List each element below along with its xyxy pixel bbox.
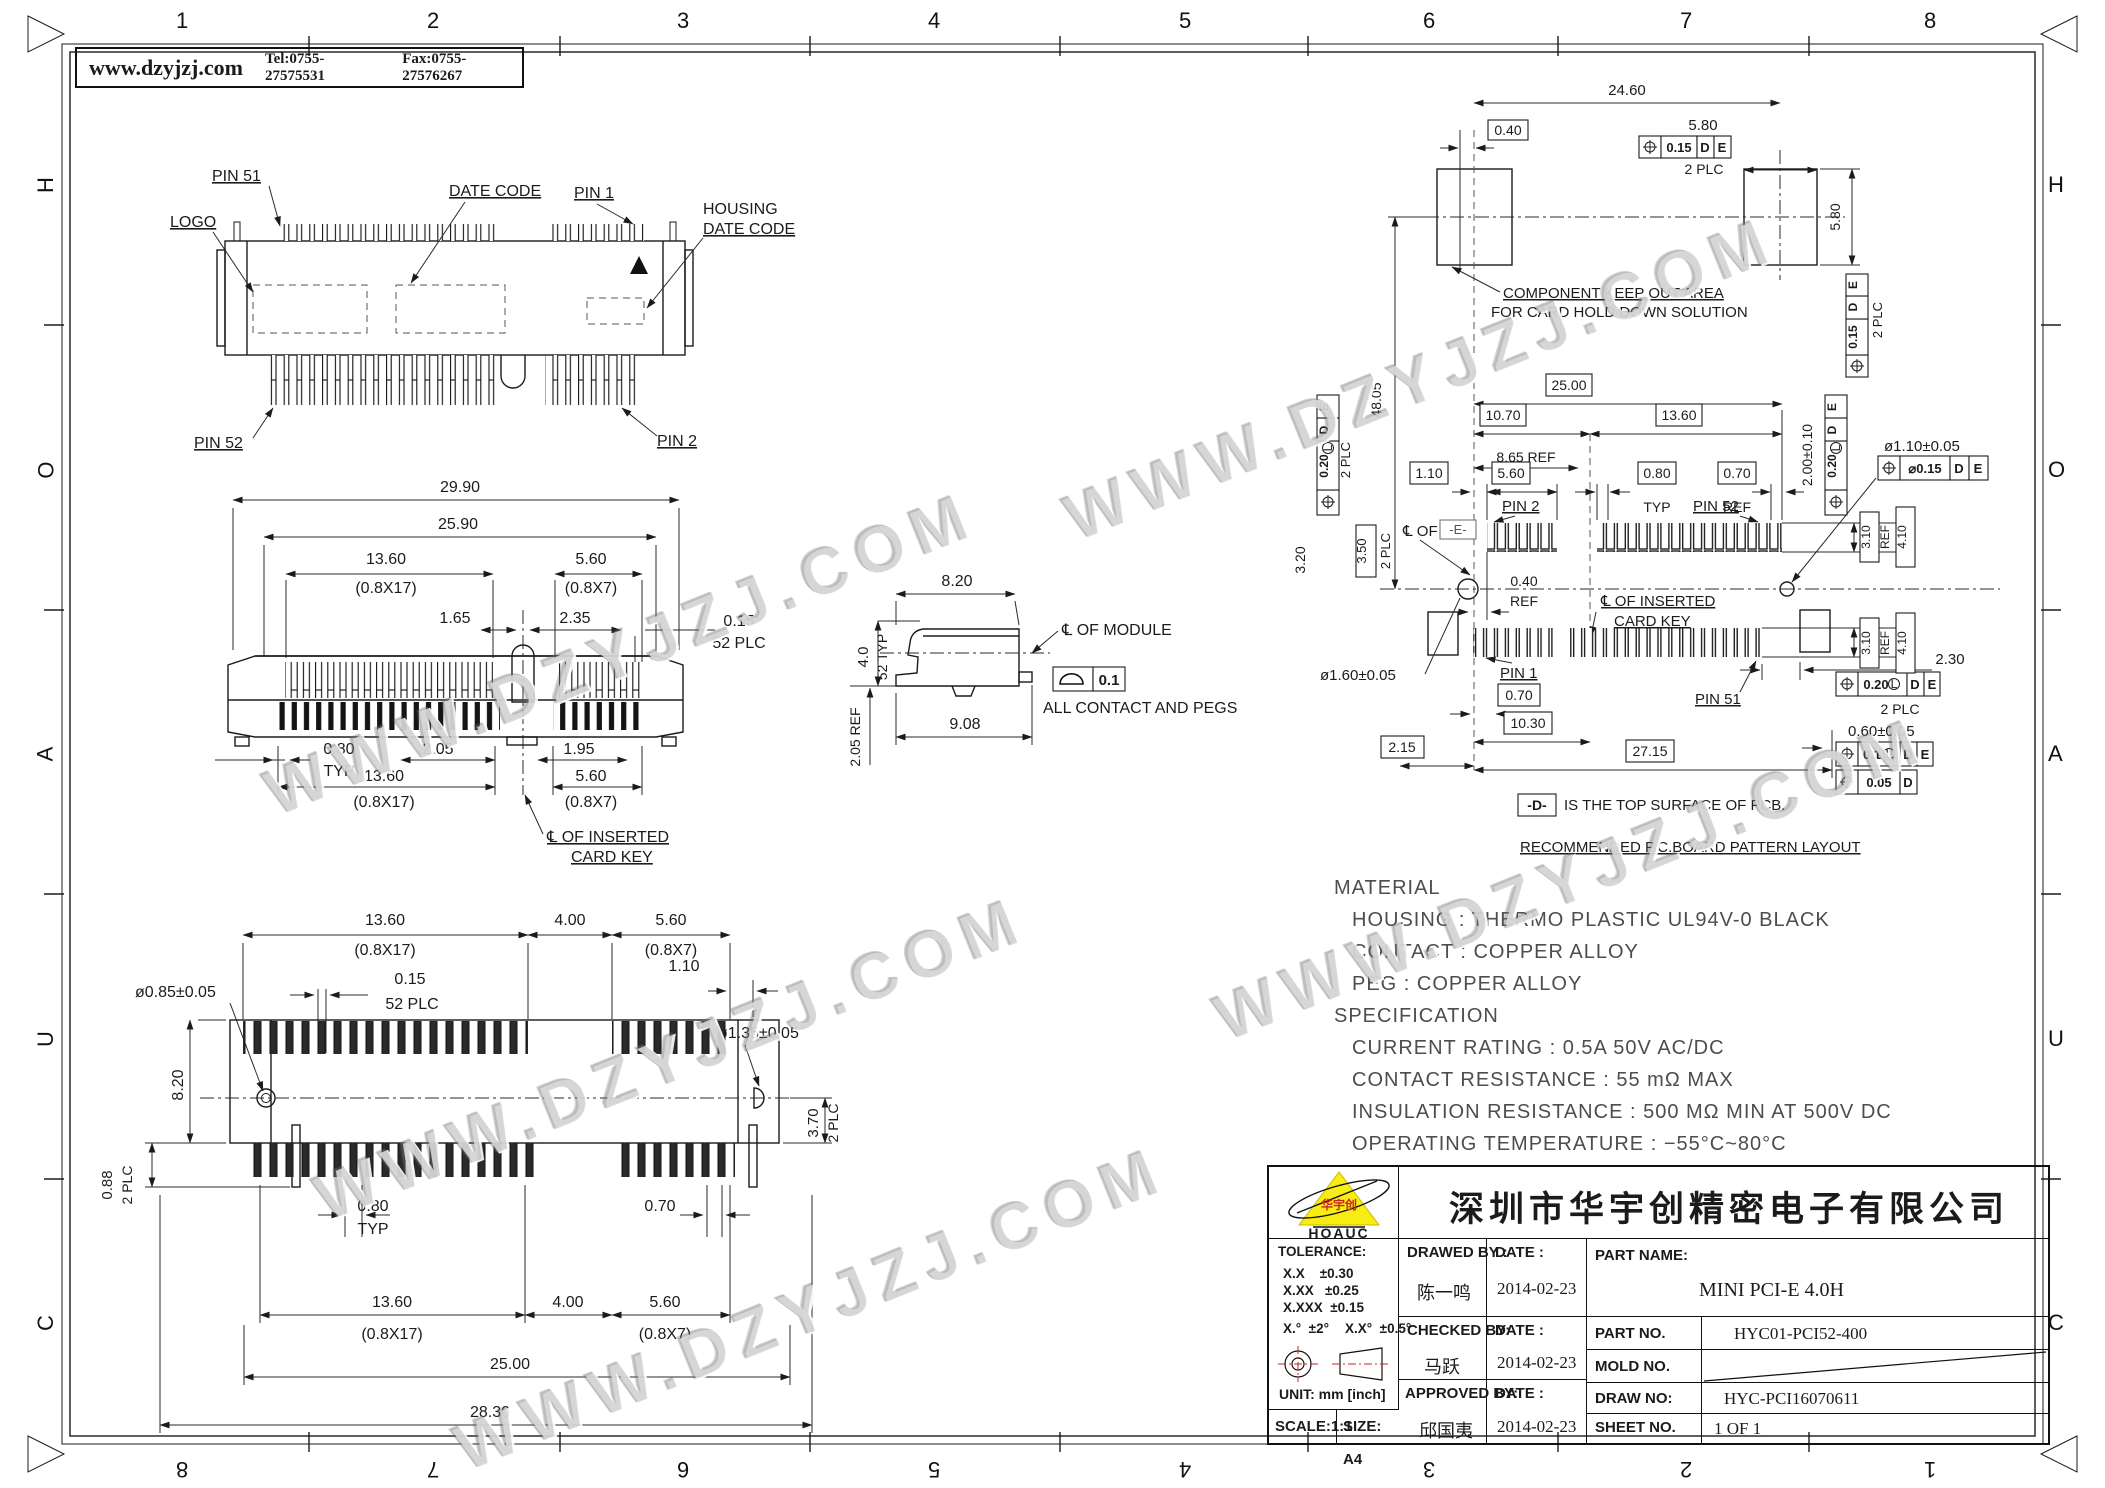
fax: Fax:0755-27576267 [402,51,522,85]
tolerance-1: X.X ±0.30 [1283,1265,1353,1282]
pcb-310-410-bottom: 3.10 REF 4.10 [1859,613,1915,673]
spec-contact-resistance: CONTACT RESISTANCE : 55 mΩ MAX [1328,1064,1888,1096]
gdt-01-e: E [1921,747,1930,762]
bv-4-00-b: 4.00 [552,1294,583,1311]
gdt-frame-2-30: 0.20 L D E 2 PLC [1836,672,1940,717]
zone-col-b8: 8 [176,1456,188,1482]
pcb-2-00: 2.00±0.10 [1799,424,1815,486]
dim-typ: TYP [323,763,354,780]
pcb-310b-ref: REF [1878,631,1892,655]
bv-2-plc: 2 PLC [825,1104,841,1143]
gdt-rv-e: E [1846,281,1860,289]
tolerance-2: X.XX ±0.25 [1283,1282,1359,1299]
bv-0-88-plc: 2 PLC [119,1166,135,1205]
dim-5-60: 5.60 [575,551,606,568]
side-view: 8.20 4.0 52 TYP 2.05 REF 9.08 ℄ OF MODUL… [780,565,1300,865]
gdt-200-l: L [1829,444,1843,451]
bv-0-70: 0.70 [644,1198,675,1215]
pcb-0-40-ref: 0.40 [1510,573,1537,589]
bv-13-60-pitch: (0.8X17) [354,942,415,959]
dim-1-95: 1.95 [563,741,594,758]
zone-row-u: U [33,1031,59,1047]
bv-typ: TYP [357,1221,388,1238]
pcb-3-20: 3.20 [1292,546,1308,573]
material-peg: PEG : COPPER ALLOY [1328,968,1888,1000]
company-logo: 华宇创 HOAUC [1277,1169,1402,1239]
part-no: HYC01-PCI52-400 [1734,1324,1867,1344]
gdt-230-l: L [1891,677,1898,691]
gdt-lv-plc: 2 PLC [1338,442,1353,478]
logo-cn-text: 华宇创 [1321,1197,1357,1212]
bv-4-00: 4.00 [554,912,585,929]
label-logo: LOGO [170,214,216,231]
tolerance-4: X.° ±2° [1283,1320,1329,1337]
zone-col-7: 7 [1680,8,1692,34]
gdt-01-l: L [1886,747,1893,761]
zone-col-b2: 2 [1680,1456,1692,1482]
gdt-005-val: 0.05 [1866,775,1891,790]
checked-date: 2014-02-23 [1497,1353,1576,1373]
gdt-frame-left-vert: 0.20 L D E 2 PLC [1317,395,1353,515]
pcb-410t: 4.10 [1895,525,1909,549]
gdt-top-val: 0.15 [1666,140,1691,155]
pcb-keepout-1: COMPONENT KEEP OUT AREA [1503,285,1724,302]
zone-row-rc: C [2048,1310,2064,1336]
label-housing-1: HOUSING [703,201,778,218]
dim-13-60-pitch: (0.8X17) [355,580,416,597]
pcb-datum-note-text: IS THE TOP SURFACE OF PCB. [1564,797,1785,814]
pcb-hole-right: ø1.10±0.05 [1884,438,1960,455]
part-name: MINI PCI-E 4.0H [1699,1279,1844,1302]
website: www.dzyjzj.com [89,55,243,81]
pcb-keepout-2: FOR CARD HOLD DOWN SOLUTION [1491,304,1748,321]
approved-by-name: 邱国夷 [1419,1417,1473,1443]
bv-13-60-b-pitch: (0.8X17) [361,1326,422,1343]
header-contact-box: www.dzyjzj.com Tel:0755-27575531 Fax:075… [75,47,524,88]
zone-col-6: 6 [1423,8,1435,34]
label-pin2: PIN 2 [657,433,697,450]
unit-label: UNIT: mm [inch] [1279,1386,1386,1402]
gdt-lv-l: L [1321,444,1335,451]
pcb-cl-of: ℄ OF [1402,523,1438,540]
pcb-5-60: 5.60 [1497,465,1524,481]
pcb-recommended-note: RECOMMENDED P.C.BOARD PATTERN LAYOUT [1520,839,1861,856]
zone-col-b4: 4 [1179,1456,1191,1482]
zone-col-b6: 6 [677,1456,689,1482]
gdt-frame-2-00: 2.00±0.10 0.20 L D E [1799,395,1847,515]
label-card-key-2: CARD KEY [571,849,653,866]
dim-2-05: 2.05 [422,741,453,758]
tolerance-5: X.X° ±0.5° [1345,1320,1411,1337]
bv-28-30: 28.30 [470,1404,510,1421]
gdt-rv-val: 0.15 [1846,325,1860,349]
pcb-ref-2: REF [1510,593,1538,609]
material-spec-block: MATERIAL HOUSING : THERMO PLASTIC UL94V-… [1328,872,1888,1160]
dim-0-15: 0.15 [723,613,754,630]
sheet-no: 1 OF 1 [1714,1419,1761,1439]
spec-title: SPECIFICATION [1328,1000,1888,1032]
note-all-contact: ALL CONTACT AND PEGS [1043,700,1237,717]
pcb-3-50-box: 3.50 2 PLC [1354,525,1393,577]
gdt-top-e: E [1718,140,1727,155]
gdt-lv-val: 0.20 [1317,454,1331,478]
zone-col-3: 3 [677,8,689,34]
label-pin51: PIN 51 [212,168,261,185]
svg-text:3.10: 3.10 [1859,525,1873,549]
gdt-230-d: D [1910,677,1919,692]
gdt-frame-hole-right: ⌀0.15 D E [1878,456,1988,480]
bv-3-70: 3.70 [805,1108,822,1137]
gdt-frame-0-05: 0.05 D [1836,770,1917,794]
dim-13-60-b: 13.60 [364,768,404,785]
approved-date-label: DATE : [1495,1385,1544,1402]
gdt-200-e: E [1825,403,1839,411]
pcb-card-key: CARD KEY [1614,613,1691,630]
gdt-frame-0-1: 0.1 L D E [1836,742,1933,766]
svg-text:3.50: 3.50 [1354,538,1369,563]
pcb-pin1: PIN 1 [1500,665,1538,682]
bv-25-00: 25.00 [490,1356,530,1373]
gdt-hr-e: E [1974,461,1983,476]
pcb-pin52: PIN 52 [1693,498,1739,515]
pcb-0-70-b: 0.70 [1505,687,1532,703]
pcb-0-80: 0.80 [1643,465,1670,481]
zone-col-b5: 5 [928,1456,940,1482]
pcb-24-60: 24.60 [1608,82,1646,99]
gdt-230-plc: 2 PLC [1881,701,1920,717]
spec-insulation: INSULATION RESISTANCE : 500 MΩ MIN AT 50… [1328,1096,1888,1128]
label-date-code: DATE CODE [449,183,541,200]
gdt-lv-d: D [1317,425,1331,434]
pcb-5-80-plc: 2 PLC [1685,161,1724,177]
gdt-01-val: 0.1 [1863,747,1881,762]
material-contact: CONTACT : COPPER ALLOY [1328,936,1888,968]
front-view: 29.90 25.90 13.60 (0.8X17) 5.60 (0.8X7) … [215,450,875,870]
gdt-lv-e: E [1317,403,1331,411]
dim-8-20: 8.20 [941,573,972,590]
gdt-frame-right-vert: 0.15 D E [1846,274,1868,377]
pcb-25-00: 25.00 [1551,377,1586,393]
svg-text:-D-: -D- [1527,797,1547,813]
bv-1-10: 1.10 [668,958,699,975]
spec-temperature: OPERATING TEMPERATURE : −55°C~80°C [1328,1128,1888,1160]
zone-row-c: C [33,1315,59,1331]
pcb-cl-inserted: ℄ OF INSERTED [1600,593,1716,610]
pcb-410b: 4.10 [1895,631,1909,655]
zone-row-a: A [32,747,58,762]
draw-no-label: DRAW NO: [1595,1390,1673,1407]
zone-col-5: 5 [1179,8,1191,34]
zone-row-h: H [33,177,59,193]
dim-0-80: 0.80 [323,741,354,758]
pcb-typ: TYP [1643,499,1670,515]
svg-text:3.10: 3.10 [1859,631,1873,655]
pcb-13-60: 13.60 [1661,407,1696,423]
pcb-2-15: 2.15 [1388,739,1415,755]
drawed-date-label: DATE : [1495,1244,1544,1261]
mold-no-empty [1702,1350,2048,1383]
zone-col-8: 8 [1924,8,1936,34]
pcb-0-70: 0.70 [1723,465,1750,481]
zone-row-ru: U [2048,1026,2064,1052]
scale-label: SCALE:1:1 [1269,1410,1337,1443]
top-view: PIN 51 DATE CODE PIN 1 HOUSING DATE CODE… [165,140,845,465]
title-block: UNIT: mm [inch] SCALE:1:1 SIZE: A4 华宇创 H… [1267,1165,2050,1445]
profile-tolerance-frame: 0.1 [1053,667,1125,691]
gdt-230-e: E [1928,677,1937,692]
dim-52-plc: 52 PLC [712,635,765,652]
pcb-48-05: 48.05 [1368,382,1384,417]
dim-29-90: 29.90 [440,479,480,496]
pcb-layout: 0.40 25.00 10.70 13.60 1.10 5.60 0.80 0.… [1300,70,2060,870]
bv-13-60: 13.60 [365,912,405,929]
draw-no: HYC-PCI16070611 [1724,1389,1859,1409]
zone-row-o: O [34,461,60,478]
dim-1-65: 1.65 [439,610,470,627]
pcb-pin2: PIN 2 [1502,498,1540,515]
gdt-rv-d: D [1846,302,1860,311]
dim-4-0: 4.0 [855,647,872,668]
pcb-0-40: 0.40 [1494,122,1521,138]
pcb-10-30: 10.30 [1510,715,1545,731]
pcb-e-datum-box: -E- [1440,520,1476,539]
bv-52-plc: 52 PLC [385,996,438,1013]
label-housing-2: DATE CODE [703,221,795,238]
drawed-by-name: 陈一鸣 [1417,1279,1471,1305]
approved-date: 2014-02-23 [1497,1417,1576,1437]
bv-5-60-pitch: (0.8X7) [645,942,697,959]
pcb-datum-note: -D- IS THE TOP SURFACE OF PCB. [1518,794,1785,816]
pcb-27-15: 27.15 [1632,743,1667,759]
pin1-triangle-mark [630,256,648,274]
dim-5-60-pitch: (0.8X7) [565,580,617,597]
zone-col-2: 2 [427,8,439,34]
svg-text:-E-: -E- [1449,522,1466,537]
tolerance-title: TOLERANCE: [1278,1243,1366,1260]
pcb-hole-left: ø1.60±0.05 [1320,667,1396,684]
pcb-0-60: 0.60±0.05 [1848,723,1915,740]
drawing-sheet: 1 2 3 4 5 6 7 8 8 7 6 5 4 3 2 1 H O A U … [0,0,2105,1488]
label-card-key-1: ℄ OF INSERTED [546,829,669,846]
dim-2-05-ref: 2.05 REF [847,707,863,766]
material-title: MATERIAL [1328,872,1888,904]
checked-date-label: DATE : [1495,1322,1544,1339]
gdt-frame-top: 0.15 D E [1639,136,1731,158]
bv-5-60-b: 5.60 [649,1294,680,1311]
gdt-230-val: 0.20 [1863,677,1888,692]
dim-5-60-b: 5.60 [575,768,606,785]
zone-col-b1: 1 [1924,1456,1936,1482]
bv-13-60-b: 13.60 [372,1294,412,1311]
drawed-date: 2014-02-23 [1497,1279,1576,1299]
pcb-310t-ref: REF [1878,525,1892,549]
dim-13-60-b-pitch: (0.8X17) [353,794,414,811]
pcb-5-80: 5.80 [1688,117,1717,134]
pcb-3-50-plc: 2 PLC [1378,533,1393,569]
zone-col-b7: 7 [427,1456,439,1482]
mold-no-label: MOLD NO. [1595,1358,1670,1375]
dim-5-60-b-pitch: (0.8X7) [565,794,617,811]
bv-5-60-b-pitch: (0.8X7) [639,1326,691,1343]
part-no-label: PART NO. [1595,1325,1666,1342]
dim-52-typ: 52 TYP [874,634,890,680]
dim-13-60: 13.60 [366,551,406,568]
label-cl-of-module: ℄ OF MODULE [1061,622,1172,639]
pcb-8-65-ref: 8.65 REF [1496,449,1555,465]
spec-current: CURRENT RATING : 0.5A 50V AC/DC [1328,1032,1888,1064]
label-pin1: PIN 1 [574,185,614,202]
dim-2-35: 2.35 [559,610,590,627]
pcb-1-10: 1.10 [1415,465,1442,481]
gdt-005-d: D [1903,775,1912,790]
bv-0-80: 0.80 [357,1198,388,1215]
zone-col-1: 1 [176,8,188,34]
bottom-view: 13.60 4.00 5.60 (0.8X17) (0.8X7) 0.15 52… [90,885,885,1445]
gdt-01-d: D [1903,747,1912,762]
bv-0-88: 0.88 [99,1170,116,1199]
pcb-310-410-top: 3.10 REF 4.10 [1859,507,1915,567]
pcb-2-30: 2.30 [1935,651,1964,668]
part-name-label: PART NAME: [1595,1247,1688,1264]
zone-col-b3: 3 [1423,1456,1435,1482]
size-label: SIZE: A4 [1343,1410,1399,1443]
bv-8-20: 8.20 [170,1069,187,1100]
tolerance-3: X.XXX ±0.15 [1283,1299,1364,1316]
dim-9-08: 9.08 [949,716,980,733]
pcb-5-80-v: 5.80 [1827,203,1843,230]
material-housing: HOUSING : THERMO PLASTIC UL94V-0 BLACK [1328,904,1888,936]
gdt-hr-val: ⌀0.15 [1908,461,1941,476]
gdt-200-val: 0.20 [1825,454,1839,478]
gdt-top-d: D [1700,140,1709,155]
projection-symbol [1270,1342,1398,1388]
bv-hole-left: ø0.85±0.05 [135,984,216,1001]
checked-by-name: 马跃 [1424,1353,1460,1379]
telephone: Tel:0755-27575531 [265,51,380,85]
gdt-hr-d: D [1954,461,1963,476]
dim-25-90: 25.90 [438,516,478,533]
drawed-by-label: DRAWED BY : [1407,1244,1508,1261]
gdt-200-d: D [1825,425,1839,434]
tol-0-1: 0.1 [1099,672,1120,689]
bv-hole-right: ø1.35±0.05 [718,1025,799,1042]
sheet-no-label: SHEET NO. [1595,1419,1676,1436]
bv-0-15: 0.15 [394,971,425,988]
pcb-5-80-v-plc: 2 PLC [1870,302,1885,338]
company-name: 深圳市华宇创精密电子有限公司 [1419,1181,2039,1232]
pcb-10-70: 10.70 [1485,407,1520,423]
bv-5-60: 5.60 [655,912,686,929]
zone-col-4: 4 [928,8,940,34]
pcb-pin51: PIN 51 [1695,691,1741,708]
